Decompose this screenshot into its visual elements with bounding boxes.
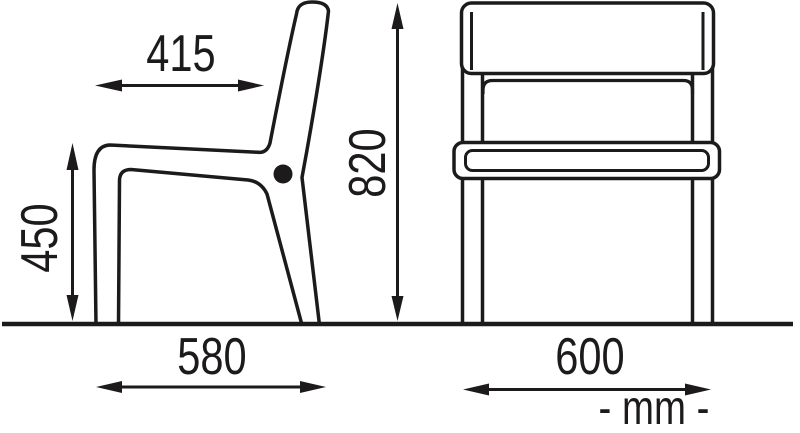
- technical-drawing-canvas: 415 450 820 580 600 - mm -: [0, 0, 800, 433]
- arrowhead-left-icon: [95, 80, 122, 92]
- dimension-label-seat-height: 450: [14, 174, 66, 302]
- arrowhead-up-icon: [67, 143, 79, 170]
- front-view-chair: [454, 3, 720, 323]
- arrowhead-right-icon: [300, 381, 326, 393]
- pivot-bolt-dot: [274, 165, 293, 184]
- arrowhead-up-icon: [392, 3, 404, 29]
- units-label: - mm -: [590, 385, 718, 433]
- arrowhead-down-icon: [392, 296, 404, 321]
- front-view-backrest-lip: [483, 81, 693, 95]
- dimension-label-overall-height: 820: [342, 99, 394, 227]
- arrowhead-left-icon: [463, 384, 489, 396]
- front-view-backrest-panel: [462, 3, 714, 74]
- front-view-seat-panel: [454, 143, 720, 179]
- arrowhead-right-icon: [238, 80, 264, 92]
- arrowhead-down-icon: [67, 295, 79, 321]
- dimension-label-overall-depth: 580: [148, 331, 276, 383]
- arrowhead-left-icon: [96, 381, 122, 393]
- dimension-label-overall-width: 600: [526, 331, 654, 383]
- dimension-label-seat-depth: 415: [117, 28, 245, 80]
